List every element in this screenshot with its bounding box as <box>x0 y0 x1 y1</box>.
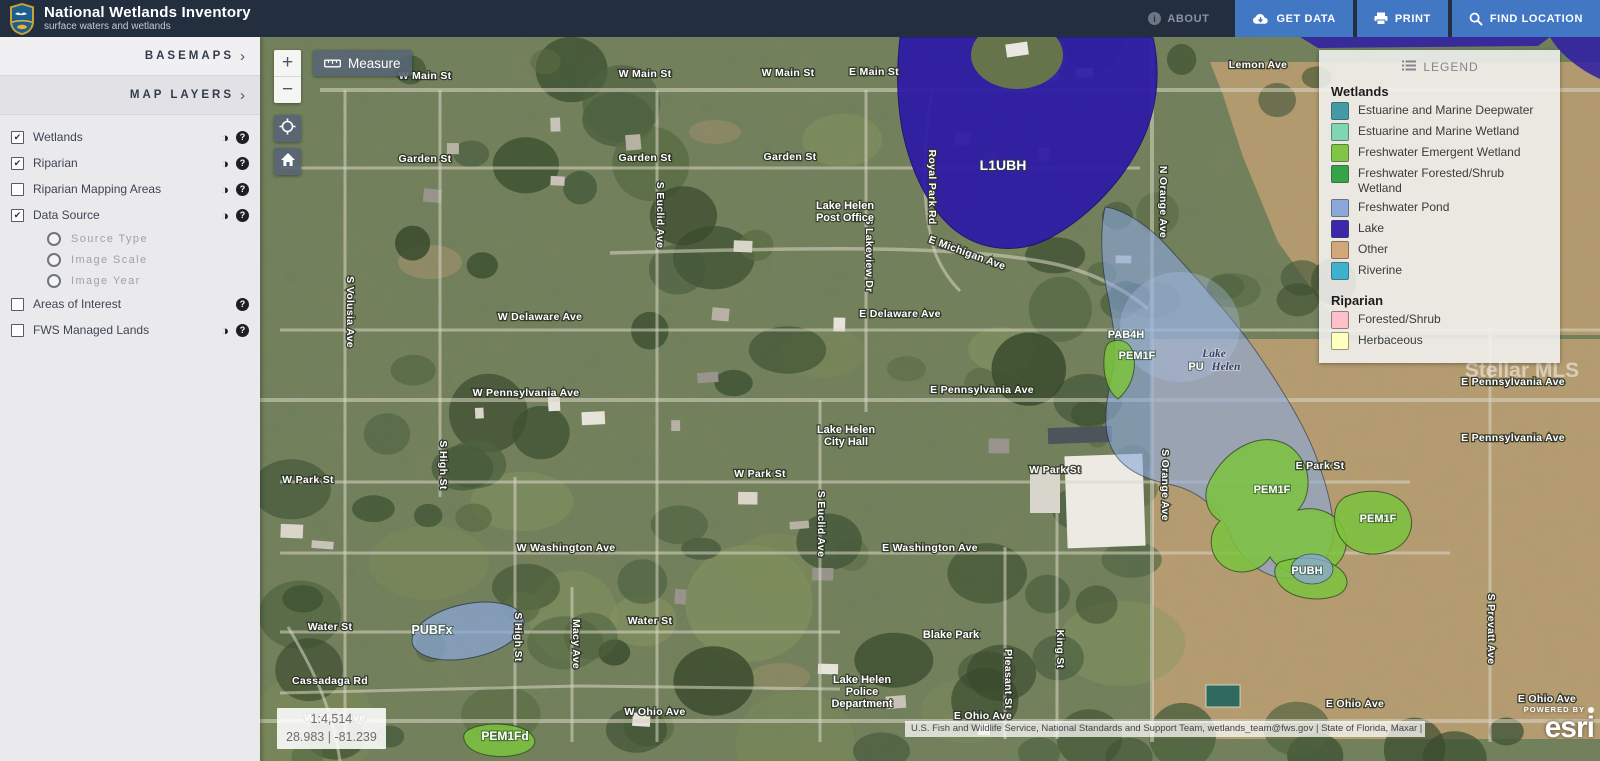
street-label: Water St <box>308 621 353 633</box>
home-icon <box>280 152 296 172</box>
radio-button[interactable] <box>47 253 61 267</box>
app-title: National Wetlands Inventory <box>44 5 251 21</box>
street-label: E Park St <box>1296 460 1345 472</box>
get-data-button[interactable]: GET DATA <box>1235 0 1352 37</box>
checkbox[interactable] <box>11 298 24 311</box>
wetland-code-label: PUBFx <box>412 623 453 637</box>
legend-swatch <box>1331 220 1349 238</box>
radio-label: Image Year <box>71 275 141 287</box>
street-label: King St <box>1054 630 1066 669</box>
place-label: Lake HelenPost Office <box>816 200 874 224</box>
layer-label: Data Source <box>33 208 100 222</box>
wetland-code-label: PUBH <box>1291 565 1322 577</box>
scale-ratio: 1:4,514 <box>286 711 377 729</box>
checkbox[interactable] <box>11 324 24 337</box>
layer-row-data-source[interactable]: ✔Data Source◑? <box>0 202 260 228</box>
street-label: Royal Park Rd <box>926 149 938 224</box>
layer-row-riparian[interactable]: ✔Riparian◑? <box>0 150 260 176</box>
street-label: Cassadaga Rd <box>292 675 368 687</box>
legend-label: Freshwater Emergent Wetland <box>1358 144 1521 160</box>
legend-item: Other <box>1331 241 1550 259</box>
legend-label: Riverine <box>1358 262 1402 278</box>
layer-label: Riparian <box>33 156 78 170</box>
legend-item: Lake <box>1331 220 1550 238</box>
layer-label: FWS Managed Lands <box>33 323 149 337</box>
legend-swatch <box>1331 311 1349 329</box>
street-label: W Pennsylvania Ave <box>473 387 580 399</box>
map-canvas[interactable]: W Main StW Main StW Main StE Main StLemo… <box>260 37 1600 761</box>
zoom-out-button[interactable]: − <box>274 77 301 103</box>
app-header: National Wetlands Inventory surface wate… <box>0 0 1600 37</box>
title-block: National Wetlands Inventory surface wate… <box>44 5 251 32</box>
legend-swatch <box>1331 241 1349 259</box>
layer-row-riparian-mapping-areas[interactable]: Riparian Mapping Areas◑? <box>0 176 260 202</box>
street-label: S Orange Ave <box>1159 449 1171 521</box>
opacity-icon[interactable]: ◑ <box>221 209 229 222</box>
printer-icon <box>1374 12 1388 25</box>
street-label: E Pennsylvania Ave <box>1461 432 1565 444</box>
street-label: W Park St <box>734 468 786 480</box>
street-label: Water St <box>628 615 673 627</box>
legend-body: WetlandsEstuarine and Marine DeepwaterEs… <box>1331 84 1550 350</box>
street-label: Lemon Ave <box>1229 59 1288 71</box>
help-icon[interactable]: ? <box>236 157 249 170</box>
legend-swatch <box>1331 144 1349 162</box>
legend-section-heading: Riparian <box>1331 293 1550 308</box>
radio-button[interactable] <box>47 232 61 246</box>
wetland-code-label: PEM1F <box>1254 484 1291 496</box>
map-layers-label: MAP LAYERS <box>130 89 234 101</box>
legend-swatch <box>1331 332 1349 350</box>
wetland-code-label: PEM1Fd <box>481 729 528 743</box>
place-label: Lake HelenCity Hall <box>817 424 875 448</box>
search-icon <box>1469 12 1483 26</box>
legend-item: Freshwater Pond <box>1331 199 1550 217</box>
map-layers-header[interactable]: MAP LAYERS › <box>0 76 260 115</box>
street-label: E Ohio Ave <box>1326 698 1384 710</box>
chevron-right-icon: › <box>240 87 248 104</box>
place-label: Blake Park <box>923 629 980 641</box>
home-button[interactable] <box>274 148 301 175</box>
wetland-code-label: PEM1F <box>1119 350 1156 362</box>
street-label: W Park St <box>282 474 334 486</box>
street-label: S Volusia Ave <box>344 276 356 348</box>
legend-label: Forested/Shrub <box>1358 311 1441 327</box>
layer-label: Areas of Interest <box>33 297 121 311</box>
measure-label: Measure <box>348 56 401 71</box>
basemaps-label: BASEMAPS <box>145 50 234 62</box>
street-label: Garden St <box>619 152 672 164</box>
help-icon[interactable]: ? <box>236 131 249 144</box>
find-location-label: FIND LOCATION <box>1490 13 1583 25</box>
legend-item: Freshwater Forested/Shrub Wetland <box>1331 165 1550 196</box>
find-location-button[interactable]: FIND LOCATION <box>1452 0 1600 37</box>
legend-label: Estuarine and Marine Deepwater <box>1358 102 1533 118</box>
street-label: S Prevatt Ave <box>1485 594 1497 665</box>
street-label: S Euclid Ave <box>654 182 666 248</box>
layer-row-wetlands[interactable]: ✔Wetlands◑? <box>0 124 260 150</box>
legend-item: Estuarine and Marine Wetland <box>1331 123 1550 141</box>
radio-label: Image Scale <box>71 254 148 266</box>
coordinates: 28.983 | -81.239 <box>286 729 377 747</box>
zoom-in-button[interactable]: + <box>274 50 301 77</box>
opacity-icon[interactable]: ◑ <box>221 157 229 170</box>
chevron-right-icon: › <box>240 48 248 65</box>
legend-item: Freshwater Emergent Wetland <box>1331 144 1550 162</box>
legend-swatch <box>1331 165 1349 183</box>
street-label: W Ohio Ave <box>624 706 685 718</box>
legend-label: Freshwater Forested/Shrub Wetland <box>1358 165 1550 196</box>
legend-item: Riverine <box>1331 262 1550 280</box>
get-data-label: GET DATA <box>1276 13 1335 25</box>
esri-logo: POWERED BY esri <box>1524 705 1594 741</box>
street-label: S Euclid Ave <box>815 491 827 557</box>
layer-list: ✔Wetlands◑?✔Riparian◑?Riparian Mapping A… <box>0 115 260 343</box>
list-icon <box>1402 60 1416 74</box>
wetland-code-label: PEM1F <box>1360 513 1397 525</box>
info-icon: i <box>1148 12 1161 25</box>
layer-row-areas-of-interest[interactable]: Areas of Interest? <box>0 291 260 317</box>
cloud-download-icon <box>1252 13 1269 25</box>
radio-row-image-scale[interactable]: Image Scale <box>0 249 260 270</box>
street-label: S High St <box>512 612 524 662</box>
street-label: W Park St <box>1029 464 1081 476</box>
checkbox[interactable]: ✔ <box>11 157 24 170</box>
locate-icon <box>279 118 296 140</box>
opacity-icon[interactable]: ◑ <box>221 131 229 144</box>
scale-indicator: 1:4,514 28.983 | -81.239 <box>277 708 386 749</box>
about-button[interactable]: i ABOUT <box>1148 12 1209 25</box>
legend-item: Herbaceous <box>1331 332 1550 350</box>
legend-swatch <box>1331 123 1349 141</box>
street-label: S High St <box>437 440 449 490</box>
opacity-icon[interactable]: ◑ <box>221 183 229 196</box>
wetland-code-label: PAB4H <box>1108 329 1145 341</box>
checkbox[interactable] <box>11 183 24 196</box>
about-label: ABOUT <box>1167 13 1209 25</box>
street-label: Garden St <box>764 151 817 163</box>
print-button[interactable]: PRINT <box>1357 0 1448 37</box>
layer-label: Riparian Mapping Areas <box>33 182 161 196</box>
street-label: Garden St <box>399 153 452 165</box>
map-attribution: U.S. Fish and Wildlife Service, National… <box>905 721 1425 737</box>
radio-button[interactable] <box>47 274 61 288</box>
basemaps-header[interactable]: BASEMAPS › <box>0 37 260 76</box>
legend-label: Other <box>1358 241 1388 257</box>
legend-title: LEGEND <box>1423 60 1478 74</box>
ruler-icon <box>324 56 341 71</box>
sidebar: BASEMAPS › MAP LAYERS › ✔Wetlands◑?✔Ripa… <box>0 37 260 761</box>
legend-header: LEGEND <box>1331 57 1550 81</box>
street-label: E Pennsylvania Ave <box>930 384 1034 396</box>
street-label: S Lakeview Dr <box>863 217 875 292</box>
checkbox[interactable]: ✔ <box>11 209 24 222</box>
street-label: Macy Ave <box>570 619 582 669</box>
street-label: N Orange Ave <box>1157 166 1169 238</box>
help-icon[interactable]: ? <box>236 298 249 311</box>
legend-label: Estuarine and Marine Wetland <box>1358 123 1519 139</box>
street-label: E Delaware Ave <box>859 308 941 320</box>
street-label: W Main St <box>762 67 815 79</box>
wetland-code-label: L1UBH <box>980 157 1027 173</box>
street-label: E Main St <box>849 66 899 78</box>
legend-item: Forested/Shrub <box>1331 311 1550 329</box>
zoom-control: + − <box>274 50 301 103</box>
wetland-code-label: PU <box>1188 361 1203 373</box>
street-label: W Delaware Ave <box>498 311 583 323</box>
radio-row-image-year[interactable]: Image Year <box>0 270 260 291</box>
measure-button[interactable]: Measure <box>313 50 412 76</box>
help-icon[interactable]: ? <box>236 324 249 337</box>
legend-panel: LEGEND WetlandsEstuarine and Marine Deep… <box>1319 50 1560 363</box>
app-subtitle: surface waters and wetlands <box>44 22 251 33</box>
help-icon[interactable]: ? <box>236 209 249 222</box>
radio-label: Source Type <box>71 233 148 245</box>
street-label: E Ohio Ave <box>1518 693 1576 705</box>
checkbox[interactable]: ✔ <box>11 131 24 144</box>
street-label: E Washington Ave <box>882 542 978 554</box>
legend-swatch <box>1331 199 1349 217</box>
legend-label: Freshwater Pond <box>1358 199 1449 215</box>
legend-swatch <box>1331 262 1349 280</box>
esri-wordmark: esri <box>1524 714 1594 741</box>
layer-label: Wetlands <box>33 130 83 144</box>
legend-swatch <box>1331 102 1349 120</box>
street-label: W Main St <box>619 68 672 80</box>
locate-button[interactable] <box>274 115 301 142</box>
legend-item: Estuarine and Marine Deepwater <box>1331 102 1550 120</box>
radio-row-source-type[interactable]: Source Type <box>0 228 260 249</box>
street-label: Pleasant St <box>1002 649 1014 709</box>
layer-row-fws-managed-lands[interactable]: FWS Managed Lands◑? <box>0 317 260 343</box>
print-label: PRINT <box>1395 13 1431 25</box>
legend-label: Herbaceous <box>1358 332 1423 348</box>
help-icon[interactable]: ? <box>236 183 249 196</box>
street-label: W Washington Ave <box>517 542 616 554</box>
opacity-icon[interactable]: ◑ <box>221 324 229 337</box>
fws-logo <box>9 3 35 35</box>
legend-section-heading: Wetlands <box>1331 84 1550 99</box>
legend-label: Lake <box>1358 220 1384 236</box>
